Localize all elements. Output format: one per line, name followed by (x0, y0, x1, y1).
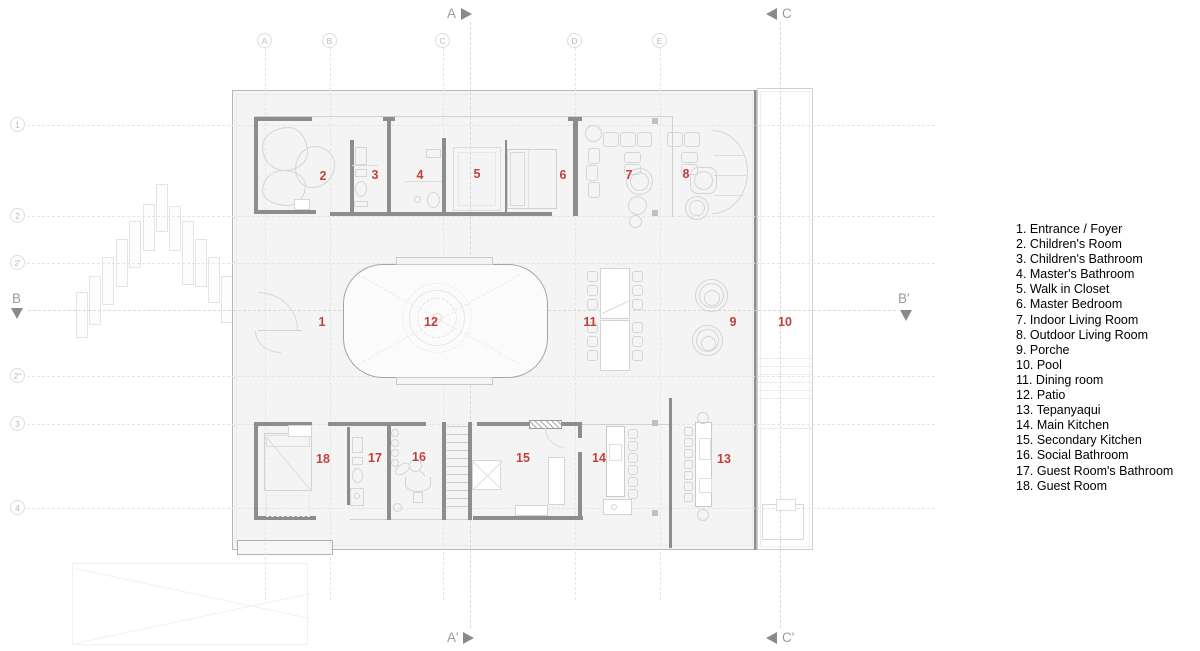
wall (330, 212, 552, 216)
site-bottom-step (237, 540, 333, 555)
chair (632, 285, 643, 296)
sofa-cushion (603, 132, 619, 147)
room-number-12: 12 (424, 315, 438, 329)
stool (684, 493, 693, 502)
section-arrow-left (766, 632, 777, 644)
legend-item: 12. Patio (1016, 388, 1173, 403)
pool-lane (758, 358, 812, 359)
drain (414, 196, 421, 203)
toilet (352, 468, 363, 483)
section-marker-B-right: B' (898, 291, 910, 306)
round-table-inner (689, 200, 705, 216)
pillow (510, 152, 525, 206)
legend-item: 8. Outdoor Living Room (1016, 328, 1173, 343)
stone (391, 449, 399, 457)
legend-item: 10. Pool (1016, 358, 1173, 373)
bar-stool (628, 465, 638, 475)
slat (89, 276, 101, 325)
curved-sofa-divider (714, 155, 744, 156)
lounge-chair-seat (704, 290, 720, 306)
section-marker-C-bottom: C' (782, 630, 794, 645)
sofa-cushion (667, 132, 683, 147)
section-arrow-left (766, 8, 777, 20)
room-number-15: 15 (516, 451, 530, 465)
prep-box (699, 478, 712, 493)
slat (76, 292, 88, 338)
legend-item: 18. Guest Room (1016, 479, 1173, 494)
sink-basin (405, 477, 431, 492)
column (652, 510, 658, 516)
grid-bubble-column: D (567, 33, 582, 48)
bar-stool (628, 453, 638, 463)
pool-spa-step (776, 499, 796, 511)
wall (442, 138, 446, 216)
chair (632, 322, 643, 333)
section-marker-C-top: C (782, 6, 792, 21)
slat (169, 206, 181, 251)
room-number-6: 6 (560, 168, 567, 182)
toilet (427, 192, 440, 208)
stool (684, 449, 693, 458)
chair (587, 285, 598, 296)
toilet (355, 181, 367, 197)
wall (254, 117, 258, 214)
section-arrow-right (461, 8, 472, 20)
pool-lane (758, 374, 812, 375)
lower-cabinet (603, 499, 632, 515)
slat (182, 221, 194, 285)
counter-cap (697, 509, 709, 521)
staircase (447, 426, 468, 514)
stool (684, 471, 693, 480)
wall (473, 516, 583, 520)
sofa-cushion (637, 132, 652, 147)
cabinet (355, 169, 367, 177)
grid-line-column (660, 48, 661, 600)
sofa-cushion (586, 165, 598, 181)
room-number-9: 9 (730, 315, 737, 329)
room-legend: 1. Entrance / Foyer2. Children's Room3. … (1016, 222, 1173, 494)
grid-bubble-column: B (322, 33, 337, 48)
chair (587, 350, 598, 361)
chair (587, 299, 598, 310)
curved-sofa-divider (714, 175, 746, 176)
counter (515, 505, 548, 516)
pool-lane (758, 382, 812, 383)
wall (573, 119, 578, 216)
chair (587, 271, 598, 282)
section-arrow-down (11, 308, 23, 319)
tepan-counter (695, 422, 712, 507)
section-arrow-down (900, 310, 912, 321)
legend-item: 5. Walk in Closet (1016, 282, 1173, 297)
shelf (354, 201, 368, 207)
stool (684, 460, 693, 469)
sofa-cushion (681, 152, 698, 163)
slat (156, 184, 168, 232)
wall (254, 210, 316, 214)
sink (426, 149, 441, 158)
curved-sofa-divider (714, 195, 744, 196)
room-number-8: 8 (683, 167, 690, 181)
counter-cap (697, 412, 709, 424)
kitchen-island (606, 426, 625, 497)
house-outline (255, 116, 673, 117)
stone (391, 439, 399, 447)
wall (383, 117, 395, 121)
room-number-16: 16 (412, 450, 426, 464)
bar-stool (628, 477, 638, 487)
legend-item: 17. Guest Room's Bathroom (1016, 464, 1173, 479)
stool (684, 482, 693, 491)
legend-item: 16. Social Bathroom (1016, 448, 1173, 463)
stone (391, 429, 399, 437)
room-number-18: 18 (316, 452, 330, 466)
legend-item: 3. Children's Bathroom (1016, 252, 1173, 267)
grid-bubble-row: 1 (10, 117, 25, 132)
wall (568, 117, 582, 121)
sink (355, 147, 367, 165)
rug (266, 495, 310, 517)
grid-bubble-column: C (435, 33, 450, 48)
grid-bubble-row: 2" (10, 368, 25, 383)
round-table-inner (694, 171, 713, 190)
floor-plan-sheet: ABCDE122'2"34 (0, 0, 1200, 651)
chair (632, 350, 643, 361)
dining-table (600, 320, 630, 371)
room-number-3: 3 (372, 168, 379, 182)
legend-item: 9. Porche (1016, 343, 1173, 358)
bed-fold (528, 150, 529, 208)
bar-stool (628, 441, 638, 451)
grid-bubble-row: 3 (10, 416, 25, 431)
bar-stool (628, 429, 638, 439)
stool (684, 427, 693, 436)
coffee-table (629, 215, 642, 228)
room-number-17: 17 (368, 451, 382, 465)
room-number-2: 2 (320, 169, 327, 183)
patio-step (396, 377, 493, 385)
legend-item: 14. Main Kitchen (1016, 418, 1173, 433)
sink-pedestal (413, 492, 423, 503)
grid-line-row (27, 216, 935, 217)
lounge-chair-seat (701, 336, 716, 351)
room-number-11: 11 (583, 315, 596, 329)
room-number-7: 7 (626, 168, 633, 182)
section-arrow-right (463, 632, 474, 644)
grid-bubble-row: 4 (10, 500, 25, 515)
legend-item: 7. Indoor Living Room (1016, 313, 1173, 328)
slat (129, 221, 141, 268)
grid-bubble-column: E (652, 33, 667, 48)
chair (587, 336, 598, 347)
east-building-edge (754, 90, 756, 550)
room-number-14: 14 (592, 451, 606, 465)
legend-item: 6. Master Bedroom (1016, 297, 1173, 312)
wall (254, 117, 312, 121)
stone (393, 503, 402, 512)
legend-item: 13. Tepanyaqui (1016, 403, 1173, 418)
wall (387, 119, 391, 216)
table-cap (605, 264, 625, 265)
pool-lane (758, 398, 812, 399)
grid-bubble-row: 2' (10, 255, 25, 270)
wall (669, 398, 672, 548)
wall (328, 422, 426, 426)
cooktop (611, 504, 617, 510)
slat (102, 257, 114, 305)
section-marker-A-bottom: A' (447, 630, 459, 645)
sofa-cushion (684, 132, 700, 147)
sofa-cushion (588, 182, 600, 198)
coffee-table-inner (630, 172, 649, 191)
shower-drain (354, 493, 360, 499)
grill (699, 438, 711, 460)
table-cap (605, 374, 625, 375)
column (652, 118, 658, 124)
room-number-10: 10 (778, 315, 792, 329)
stool (684, 438, 693, 447)
wall (254, 422, 258, 520)
sink (352, 437, 363, 453)
grid-bubble-column: A (257, 33, 272, 48)
section-marker-B-left: B (12, 291, 21, 306)
chair (632, 271, 643, 282)
dresser (294, 199, 310, 210)
sofa-cushion (624, 152, 641, 163)
slat (143, 204, 155, 251)
grid-bubble-row: 2 (10, 208, 25, 223)
pool-lane (758, 366, 812, 367)
room-number-13: 13 (717, 452, 731, 466)
coffee-table (628, 196, 647, 215)
room-number-1: 1 (319, 315, 326, 329)
wall (477, 422, 530, 426)
side-table (585, 125, 602, 142)
legend-item: 11. Dining room (1016, 373, 1173, 388)
legend-item: 2. Children's Room (1016, 237, 1173, 252)
sofa-cushion (588, 148, 600, 164)
counter (548, 457, 565, 505)
legend-item: 1. Entrance / Foyer (1016, 222, 1173, 237)
chair (632, 336, 643, 347)
column (652, 420, 658, 426)
wall (578, 452, 582, 520)
legend-item: 4. Master's Bathroom (1016, 267, 1173, 282)
section-marker-A-top: A (447, 6, 456, 21)
room-number-4: 4 (417, 168, 424, 182)
room-number-5: 5 (474, 167, 481, 181)
chair (632, 299, 643, 310)
wall (442, 422, 446, 520)
partition (352, 165, 378, 166)
grid-line-column (330, 48, 331, 600)
house-outline (350, 519, 470, 520)
pool-lane (758, 428, 812, 429)
bar-stool (628, 489, 638, 499)
sink (609, 444, 622, 461)
wall (578, 422, 582, 438)
patio-step (396, 257, 493, 265)
pool-lane (758, 390, 812, 391)
shelf (288, 425, 312, 437)
legend-item: 15. Secondary Kitchen (1016, 433, 1173, 448)
grid-line-row (27, 125, 935, 126)
wall (387, 422, 391, 520)
cabinet (352, 457, 363, 465)
column (652, 210, 658, 216)
sofa-cushion (620, 132, 636, 147)
